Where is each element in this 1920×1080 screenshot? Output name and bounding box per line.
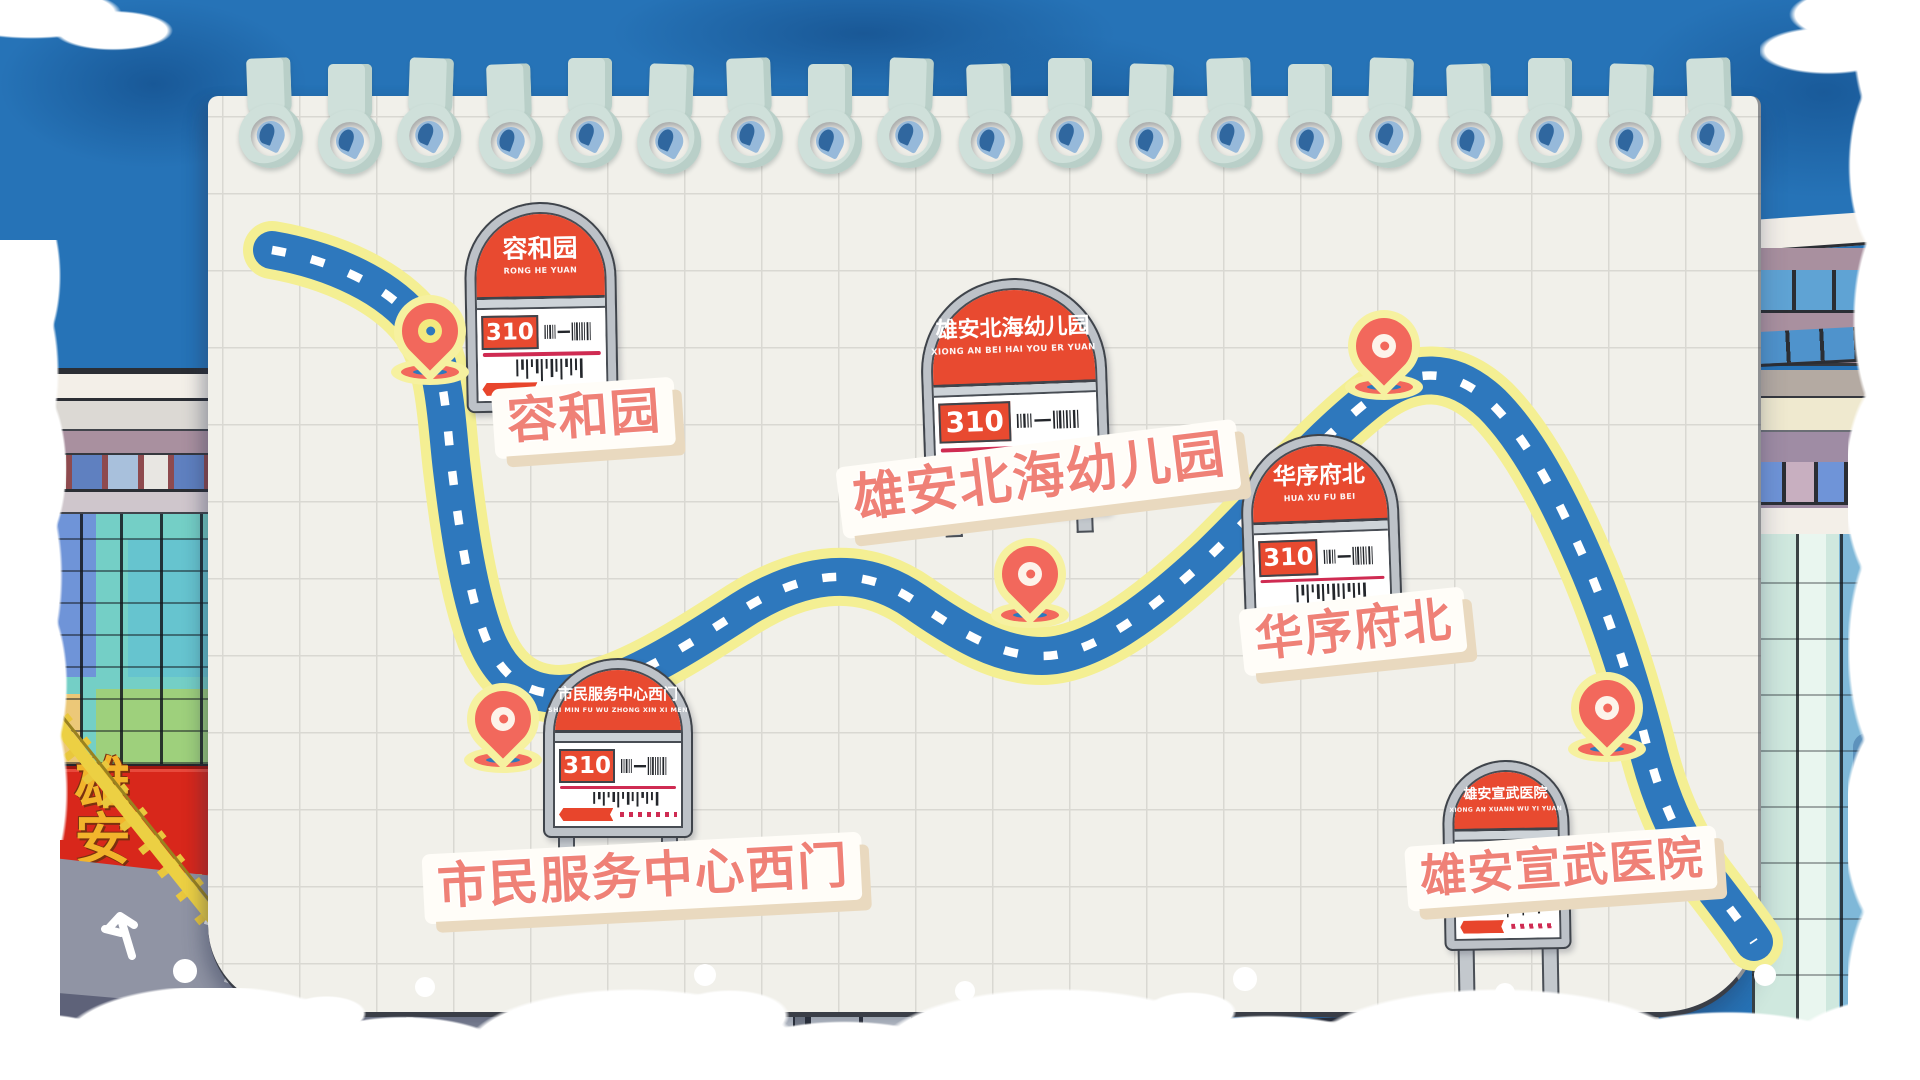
route-number-badge: 310 <box>559 749 615 783</box>
binding-ring <box>562 58 618 170</box>
binding-ring <box>1200 57 1260 171</box>
binding-ring <box>1440 63 1500 177</box>
map-pin-icon <box>461 685 545 789</box>
stop-name-cn: 雄安宣武医院 <box>1463 787 1547 804</box>
sign-frame-bar <box>555 733 681 743</box>
sign-header: 市民服务中心西门SHI MIN FU WU ZHONG XIN XI MEN <box>555 670 681 733</box>
barcode-decoration <box>621 755 677 777</box>
binding-ring <box>322 64 378 176</box>
building-windows <box>1752 462 1920 505</box>
binding-ring <box>1360 57 1420 171</box>
binding-ring <box>1120 63 1180 177</box>
binding-ring <box>640 63 700 177</box>
sign-header: 容和园RONG HE YUAN <box>475 213 604 300</box>
stop-name-pinyin: SHI MIN FU WU ZHONG XIN XI MEN <box>548 706 688 714</box>
barcode-decoration <box>1016 407 1093 432</box>
building-windows <box>0 455 214 492</box>
sign-header: 雄安宣武医院XIONG AN XUANN WU YI YUAN <box>1454 771 1558 832</box>
ribbon-decoration <box>1460 920 1504 934</box>
bus-stop-sign: 市民服务中心西门SHI MIN FU WU ZHONG XIN XI MEN31… <box>543 658 693 838</box>
stop-label: 容和园 <box>493 379 676 457</box>
stop-name-cn: 容和园 <box>502 235 577 264</box>
barcode-decoration <box>1324 544 1385 568</box>
sign-header: 华序府北HUA XU FU BEI <box>1251 444 1388 526</box>
binding-ring <box>1042 58 1098 170</box>
binding-ring <box>240 57 300 171</box>
stop-name-pinyin: RONG HE YUAN <box>503 265 577 275</box>
binding-ring <box>1600 63 1660 177</box>
binding-ring <box>1522 58 1578 170</box>
binding-ring <box>1680 57 1740 171</box>
stop-name-pinyin: HUA XU FU BEI <box>1284 491 1356 503</box>
stop-name-cn: 市民服务中心西门 <box>558 686 678 703</box>
map-pin-icon <box>388 297 472 401</box>
barcode-decoration <box>544 320 602 343</box>
stop-name-pinyin: XIONG AN XUANN WU YI YUAN <box>1449 805 1562 814</box>
map-pin-icon <box>1565 674 1649 778</box>
bus-stop-sign: 容和园RONG HE YUAN310 <box>463 201 619 414</box>
binding-ring <box>880 57 940 171</box>
right-building <box>1752 220 1920 1032</box>
map-pin-icon <box>1342 312 1426 416</box>
binding-ring <box>720 57 780 171</box>
stop-name-cn: 华序府北 <box>1273 463 1366 491</box>
building-windows <box>1752 270 1920 313</box>
stop-label-text: 容和园 <box>493 379 676 457</box>
dots-decoration <box>620 812 677 817</box>
scene: 雄 安 XIONGAN <box>0 0 1920 1080</box>
glass-tower <box>1752 534 1920 1032</box>
red-divider <box>483 351 601 356</box>
binding-ring <box>960 63 1020 177</box>
barcode-decoration <box>590 792 670 808</box>
stop-name-pinyin: XIONG AN BEI HAI YOU ER YUAN <box>931 342 1096 358</box>
ribbon-decoration <box>559 808 613 821</box>
red-divider <box>560 786 676 788</box>
binding-ring <box>1282 64 1338 176</box>
sign-header: 雄安北海幼儿园XIONG AN BEI HAI YOU ER YUAN <box>930 287 1095 388</box>
binding-ring <box>802 64 858 176</box>
map-pin-icon <box>988 540 1072 644</box>
route-number-badge: 310 <box>938 401 1011 444</box>
binding-ring <box>400 57 460 171</box>
stop-name-cn: 雄安北海幼儿园 <box>935 315 1090 345</box>
route-number-badge: 310 <box>481 315 538 350</box>
dots-decoration <box>1511 923 1555 929</box>
sign-panel: 310 <box>555 743 681 826</box>
barcode-decoration <box>513 358 595 383</box>
route-number-badge: 310 <box>1258 539 1319 577</box>
binding-ring <box>480 63 540 177</box>
yellow-bus <box>1632 1030 1920 1080</box>
